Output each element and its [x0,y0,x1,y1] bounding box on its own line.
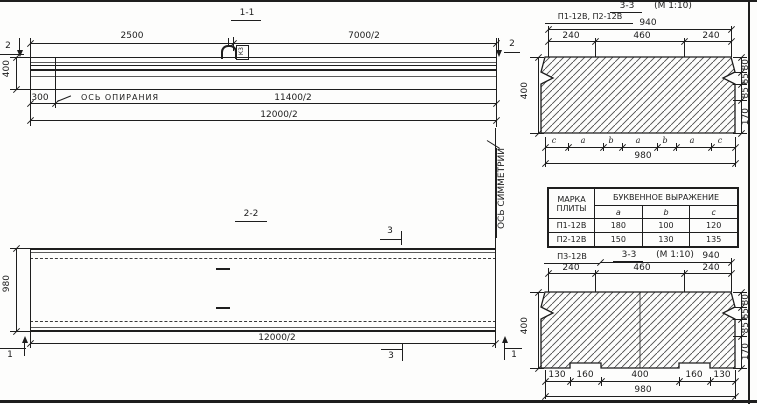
plate-left-edge [30,248,31,332]
dim-85: 85 [742,322,751,333]
dim-160: 160 [573,370,597,380]
dim-line [545,381,735,382]
drawing-sheet: 1-1 2500 7000/2 2 2 К3 [0,0,757,404]
section-scale: (М 1:10) [644,1,702,11]
cell-a: 180 [595,219,643,233]
dim-line [30,343,496,344]
lifting-loop-icon [221,45,237,59]
table-header-expression: БУКВЕННОЕ ВЫРАЖЕНИЕ [595,189,738,206]
plate-bottom-edge [30,89,497,90]
table-row: П2-12В 150 130 135 [549,233,738,247]
dim-line [545,163,735,164]
dim-line [545,396,735,397]
dim-980: 980 [630,385,656,395]
cut-mark-line [504,52,520,53]
cut-mark-line [402,344,403,361]
dim-line [548,29,731,30]
symmetry-axis-label-box: ОСЬ СИММЕТРИИ [496,148,507,238]
segment-letter: a [633,136,643,145]
cut-mark-line [401,231,402,245]
cut-mark-3-bottom: 3 [385,351,397,361]
cut-mark-line [380,239,402,240]
extension-line [30,38,31,126]
dim-12000-2: 12000/2 [254,110,304,120]
dim-line [545,147,735,148]
dim-line [538,292,539,368]
table-header-mark: МАРКА ПЛИТЫ [549,189,595,219]
label-underline [545,23,633,24]
section-title: 1-1 [232,8,262,18]
plate-parameters-table: МАРКА ПЛИТЫ БУКВЕННОЕ ВЫРАЖЕНИЕ a b c П1… [547,187,739,248]
section-title: 3-3 [612,1,642,11]
title-underline [235,221,267,222]
dim-240: 240 [558,263,584,273]
dim-7000-2: 7000/2 [340,31,388,41]
section-title: 2-2 [236,209,266,219]
symmetry-axis-label: ОСЬ СИММЕТРИИ [498,148,507,229]
dim-line [30,43,497,44]
plate-layer-line [30,62,497,63]
dim-400: 400 [3,60,12,77]
header-line1: МАРКА [549,195,594,204]
dim-12000-2: 12000/2 [252,333,302,343]
table-col-c: c [690,206,738,219]
cross-section-body [538,290,740,372]
loop-mark-label: К3 [238,47,245,55]
table: МАРКА ПЛИТЫ БУКВЕННОЕ ВЫРАЖЕНИЕ a b c П1… [548,188,738,247]
section-scale: (М 1:10) [646,250,704,260]
dim-460: 460 [628,31,656,41]
extension-line [495,331,496,348]
title-underline [231,20,261,21]
segment-letter: a [578,136,588,145]
loop-mark-box: К3 [236,45,249,60]
segment-letter: a [687,136,697,145]
section-title: 3-3 [614,250,644,260]
plate-top-edge [30,57,497,58]
extension-line [10,89,30,90]
cell-c: 120 [690,219,738,233]
cut-mark-line [381,349,403,350]
dim-line [30,120,497,121]
hidden-edge-dashed [30,321,496,322]
dim-940: 940 [697,251,725,261]
cell-b: 130 [642,233,690,247]
cell-a: 150 [595,233,643,247]
extension-line [10,57,30,58]
table-col-a: a [595,206,643,219]
table-row: П1-12В 180 100 120 [549,219,738,233]
extension-line [496,38,497,127]
dim-980: 980 [630,151,656,161]
leader-line [57,95,71,102]
plate-top-edge [30,248,496,250]
plate-edge-line [30,252,496,253]
dim-940: 940 [634,18,662,28]
dim-980: 980 [3,275,12,292]
cell-mark: П1-12В [549,219,595,233]
dim-460: 460 [628,263,656,273]
dim-400: 400 [521,82,530,99]
plates-label: П1-12В, П2-12В [548,12,632,21]
dim-400: 400 [628,370,652,380]
cut-mark-2-left: 2 [2,41,14,51]
cross-section-body [538,55,740,137]
cell-b: 100 [642,219,690,233]
plate-bottom-edge [30,330,496,332]
extension-line [10,331,30,332]
segment-letter: b [660,136,670,145]
dim-170: 170 [742,108,751,125]
cut-mark-line [0,348,26,349]
arrow-up-icon [502,336,508,343]
cell-c: 135 [690,233,738,247]
cell-mark: П2-12В [549,233,595,247]
table-col-b: b [642,206,690,219]
segment-letter: c [549,136,559,145]
bearing-axis-label: ОСЬ ОПИРАНИЯ [74,93,166,102]
cut-mark-arrow-line [504,340,505,360]
cut-mark-line [504,348,522,349]
dim-160: 160 [682,370,706,380]
header-line2: ПЛИТЫ [549,204,594,213]
frame-bottom [0,400,757,403]
dim-240: 240 [698,263,724,273]
dim-line [30,103,497,104]
plate-layer-line [30,76,497,77]
dim-line [548,41,731,42]
dim-line [16,57,17,90]
cut-mark-1-right: 1 [508,350,520,360]
cut-mark-2-right: 2 [506,39,518,49]
plate-label: П3-12В [548,252,596,261]
dim-240: 240 [558,31,584,41]
extension-line [10,248,30,249]
center-mark [216,268,230,270]
dim-line [538,57,539,133]
dim-2500: 2500 [112,31,152,41]
dim-240: 240 [698,31,724,41]
extension-line [30,331,31,348]
arrow-up-icon [22,336,28,343]
cut-mark-3-top: 3 [384,226,396,236]
plate-layer-line [30,65,497,66]
plate-right-edge [495,248,496,332]
segment-letter: b [606,136,616,145]
dim-400: 400 [521,317,530,334]
dim-line [16,248,17,331]
hidden-edge-dashed [30,258,496,259]
plate-layer-line [30,69,497,71]
plate-edge-line [30,327,496,328]
dim-170: 170 [742,343,751,360]
cut-mark-1-left: 1 [5,350,15,360]
dim-11400-2: 11400/2 [268,93,318,103]
dim-line [548,273,731,274]
segment-letter: c [715,136,725,145]
center-mark [216,307,230,309]
